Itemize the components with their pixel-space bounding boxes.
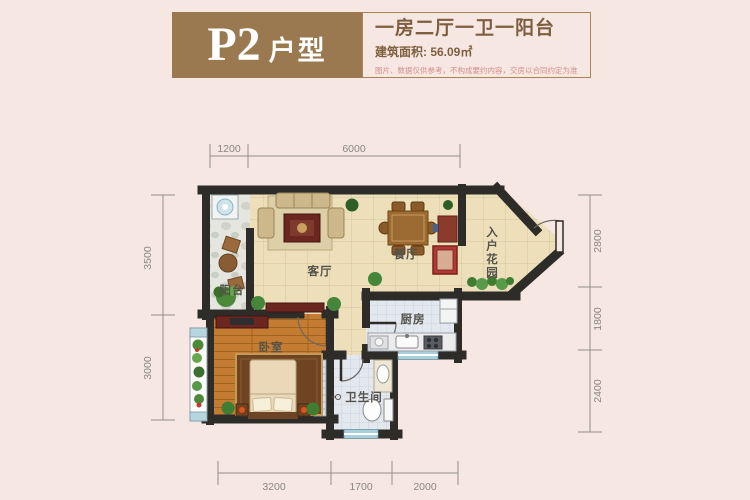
bed <box>248 360 298 419</box>
dining-chair <box>411 202 424 211</box>
dim-bottom-2: 1700 <box>349 481 373 493</box>
coffee-table <box>284 214 320 242</box>
plant-bedroom-right <box>307 403 320 416</box>
plant-bedroom-left <box>222 402 235 415</box>
room-label-entry-garden: 入户花园 <box>485 226 498 280</box>
dim-right-1: 2800 <box>592 229 604 253</box>
kitchen-window <box>398 351 438 360</box>
lamp-right <box>301 407 308 414</box>
sideboard-item <box>433 224 438 232</box>
dim-top-line <box>210 144 460 168</box>
armchair-left <box>258 208 274 238</box>
washing-machine <box>212 195 238 219</box>
floor-plan: 阳台 客厅 餐厅 入户花园 厨房 卧室 卫生间 1200 6000 3500 3… <box>0 0 750 500</box>
dim-bottom-1: 3200 <box>262 481 286 493</box>
sideboard <box>438 216 457 242</box>
dim-left-2: 3000 <box>142 356 154 380</box>
bathroom-vanity <box>374 360 392 392</box>
plant-living-left <box>251 296 265 310</box>
kitchen-sink <box>396 334 418 348</box>
dining-chair <box>392 202 405 211</box>
tv-cabinet-bedroom <box>216 316 268 328</box>
decorative-rug <box>433 246 457 274</box>
room-label-balcony: 阳台 <box>220 283 245 297</box>
plant-living-center <box>368 272 382 286</box>
room-label-bathroom: 卫生间 <box>345 390 383 404</box>
plant-hallway <box>327 297 341 311</box>
dim-top-2: 6000 <box>342 143 366 155</box>
sofa <box>276 193 330 208</box>
plant-living-top <box>346 199 359 212</box>
tv-cabinet-living <box>266 303 324 312</box>
fridge <box>440 299 457 323</box>
dining-table <box>388 211 428 245</box>
room-label-living: 客厅 <box>307 264 333 278</box>
plant-dining <box>443 200 453 210</box>
dim-right-2: 1800 <box>592 307 604 331</box>
dim-top-1: 1200 <box>217 143 241 155</box>
lamp-left <box>239 407 246 414</box>
room-label-kitchen: 厨房 <box>401 312 426 326</box>
bathroom-window <box>344 430 378 439</box>
dim-left-line <box>151 195 175 420</box>
flower-box <box>190 328 207 421</box>
dim-right-3: 2400 <box>592 379 604 403</box>
armchair-right <box>328 208 344 238</box>
room-label-bedroom: 卧室 <box>259 340 284 354</box>
stove <box>424 336 442 349</box>
room-label-dining: 餐厅 <box>393 247 419 261</box>
dim-bottom-3: 2000 <box>413 481 437 493</box>
kitchen-cabinet <box>370 336 388 349</box>
balcony-pot <box>219 254 237 272</box>
dim-left-1: 3500 <box>142 246 154 270</box>
